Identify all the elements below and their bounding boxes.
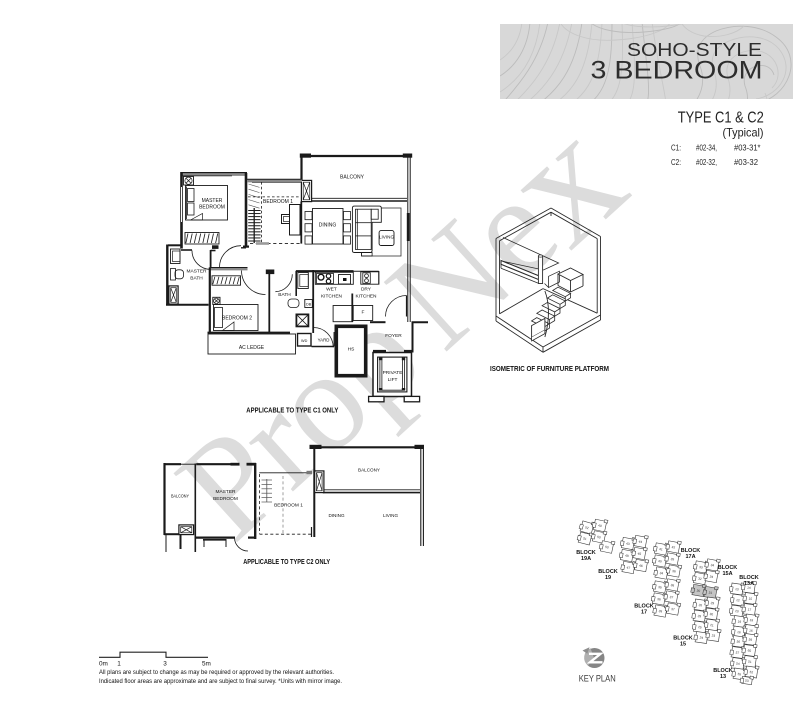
svg-text:All plans are subject to chang: All plans are subject to change as may b… [99, 669, 334, 676]
svg-text:5m: 5m [202, 661, 211, 668]
svg-text:AC LEDGE: AC LEDGE [239, 345, 265, 351]
svg-text:DRY: DRY [361, 287, 372, 293]
svg-text:15A: 15A [722, 571, 732, 577]
svg-text:BEDROOM 2: BEDROOM 2 [222, 315, 252, 321]
svg-text:#03-31*: #03-31* [734, 144, 761, 153]
svg-text:BEDROOM: BEDROOM [213, 496, 238, 502]
svg-text:C1:: C1: [671, 144, 681, 153]
svg-text:#03-32: #03-32 [734, 158, 758, 167]
svg-text:ISOMETRIC OF FURNITURE PLATFOR: ISOMETRIC OF FURNITURE PLATFORM [490, 364, 609, 373]
svg-text:17A: 17A [685, 554, 695, 560]
svg-text:WET: WET [326, 287, 337, 293]
svg-text:(Typical): (Typical) [723, 126, 764, 140]
svg-text:BEDROOM: BEDROOM [199, 205, 225, 211]
svg-text:YARD: YARD [318, 338, 330, 343]
svg-text:KEY PLAN: KEY PLAN [579, 674, 616, 684]
svg-text:15: 15 [680, 642, 686, 648]
svg-text:KITCHEN: KITCHEN [355, 294, 377, 300]
svg-text:3 BEDROOM: 3 BEDROOM [591, 58, 763, 85]
svg-text:17: 17 [641, 609, 647, 615]
svg-text:F: F [362, 310, 365, 316]
svg-text:KITCHEN: KITCHEN [321, 294, 343, 300]
svg-text:DINING: DINING [319, 223, 337, 229]
svg-text:C2:: C2: [671, 158, 681, 167]
svg-text:13: 13 [720, 674, 726, 680]
svg-text:MASTER: MASTER [202, 198, 223, 204]
svg-text:Indicated floor areas are appr: Indicated floor areas are approximate an… [99, 678, 342, 685]
svg-text:BALCONY: BALCONY [358, 468, 380, 473]
svg-text:0m: 0m [99, 661, 108, 668]
svg-text:MASTER: MASTER [216, 489, 237, 495]
svg-text:BEDROOM 1: BEDROOM 1 [274, 503, 303, 509]
svg-text:TYPE C1 & C2: TYPE C1 & C2 [678, 109, 764, 126]
svg-text:MASTER: MASTER [187, 269, 208, 275]
svg-text:APPLICABLE TO TYPE C2 ONLY: APPLICABLE TO TYPE C2 ONLY [243, 557, 330, 566]
svg-text:PRIVATE: PRIVATE [383, 370, 403, 376]
svg-text:BATH: BATH [278, 292, 291, 298]
svg-text:#02-34,: #02-34, [696, 144, 717, 153]
svg-text:LIVING: LIVING [379, 234, 394, 239]
svg-text:#02-32,: #02-32, [696, 158, 717, 167]
svg-text:BEDROOM 1: BEDROOM 1 [263, 199, 293, 205]
svg-text:LIVING: LIVING [383, 513, 398, 518]
svg-text:19A: 19A [581, 556, 591, 562]
svg-text:13A: 13A [744, 581, 754, 587]
svg-text:BALCONY: BALCONY [171, 494, 189, 499]
svg-text:3: 3 [163, 661, 167, 668]
svg-text:LIFT: LIFT [388, 377, 398, 383]
svg-text:19: 19 [605, 575, 611, 581]
svg-text:DB: DB [306, 303, 312, 307]
svg-text:HS: HS [348, 347, 355, 353]
svg-text:APPLICABLE TO TYPE C1 ONLY: APPLICABLE TO TYPE C1 ONLY [246, 406, 338, 415]
svg-text:DINING: DINING [328, 513, 345, 518]
svg-text:BALCONY: BALCONY [340, 175, 365, 181]
svg-text:BATH: BATH [190, 276, 203, 282]
svg-text:WD: WD [301, 339, 308, 343]
svg-text:FOYER: FOYER [385, 333, 402, 339]
svg-text:1: 1 [117, 661, 121, 668]
